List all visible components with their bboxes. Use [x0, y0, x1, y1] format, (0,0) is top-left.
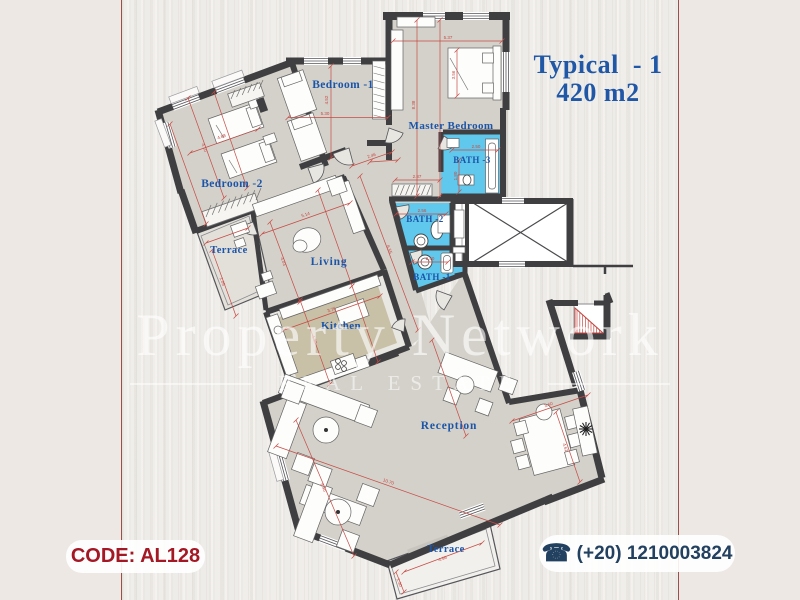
svg-text:2.50: 2.50	[426, 256, 435, 261]
svg-text:Terrace: Terrace	[210, 245, 247, 256]
svg-text:Bedroom -1: Bedroom -1	[312, 79, 374, 91]
svg-text:4.52: 4.52	[324, 95, 329, 104]
svg-text:Reception: Reception	[421, 420, 477, 432]
svg-text:Terrace: Terrace	[427, 544, 464, 555]
svg-text:Master Bedroom: Master Bedroom	[409, 120, 494, 132]
svg-text:5.37: 5.37	[444, 35, 453, 40]
svg-text:1.80: 1.80	[453, 171, 458, 180]
svg-text:8.38: 8.38	[411, 100, 416, 109]
svg-text:Bedroom -2: Bedroom -2	[201, 178, 263, 190]
svg-text:BATH -2: BATH -2	[406, 214, 443, 224]
svg-text:BATH -1: BATH -1	[413, 272, 450, 282]
svg-text:2.50: 2.50	[472, 144, 481, 149]
svg-text:5.30: 5.30	[321, 111, 330, 116]
svg-text:Living: Living	[311, 256, 348, 268]
svg-text:2.87: 2.87	[413, 174, 422, 179]
svg-text:2.56: 2.56	[418, 208, 427, 213]
svg-text:BATH -3: BATH -3	[453, 155, 490, 165]
svg-text:3.56: 3.56	[451, 70, 456, 79]
